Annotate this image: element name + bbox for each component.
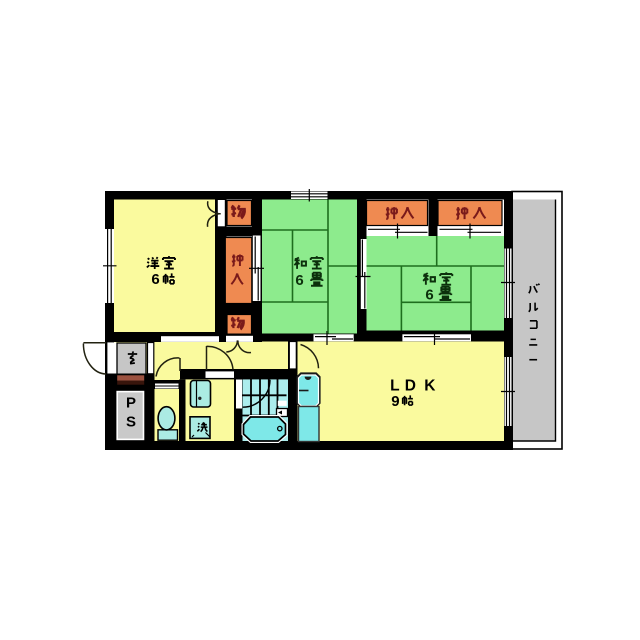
svg-text:9: 9 <box>391 393 399 410</box>
svg-text:6: 6 <box>151 271 159 288</box>
svg-text:P: P <box>126 395 136 412</box>
svg-text:6: 6 <box>295 272 303 289</box>
svg-text:K: K <box>424 377 436 394</box>
svg-text:6: 6 <box>425 287 433 304</box>
svg-text:D: D <box>405 377 416 394</box>
svg-text:S: S <box>126 414 136 431</box>
